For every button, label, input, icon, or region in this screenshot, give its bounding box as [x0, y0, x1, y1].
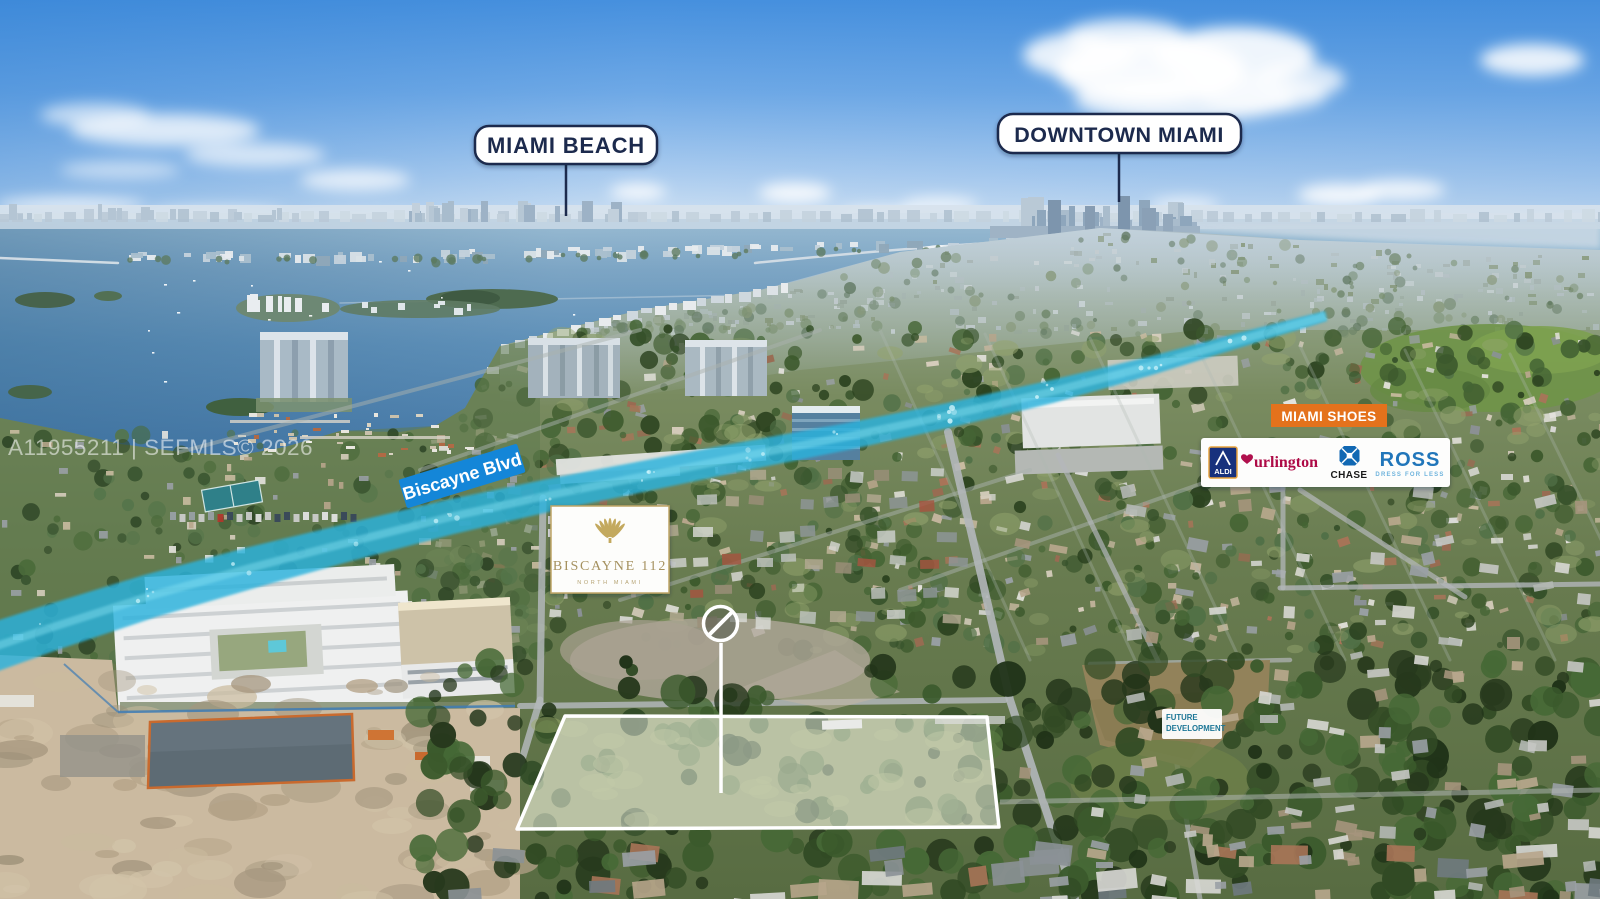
svg-text:DEVELOPMENT: DEVELOPMENT: [1166, 724, 1226, 733]
svg-text:NORTH MIAMI: NORTH MIAMI: [577, 580, 642, 586]
svg-text:CHASE: CHASE: [1330, 470, 1367, 481]
svg-text:DOWNTOWN MIAMI: DOWNTOWN MIAMI: [1014, 123, 1224, 147]
svg-text:A11955211 | SEFMLS© 2026: A11955211 | SEFMLS© 2026: [8, 435, 313, 460]
svg-text:MIAMI SHOES: MIAMI SHOES: [1281, 409, 1376, 424]
svg-text:MIAMI BEACH: MIAMI BEACH: [487, 133, 645, 158]
svg-text:FUTURE: FUTURE: [1166, 713, 1198, 722]
svg-text:DRESS FOR LESS: DRESS FOR LESS: [1375, 472, 1444, 478]
svg-text:ROSS: ROSS: [1380, 449, 1441, 471]
svg-text:BISCAYNE 112: BISCAYNE 112: [553, 559, 667, 574]
svg-text:ALDI: ALDI: [1214, 467, 1232, 476]
svg-text:urlington: urlington: [1254, 454, 1318, 471]
